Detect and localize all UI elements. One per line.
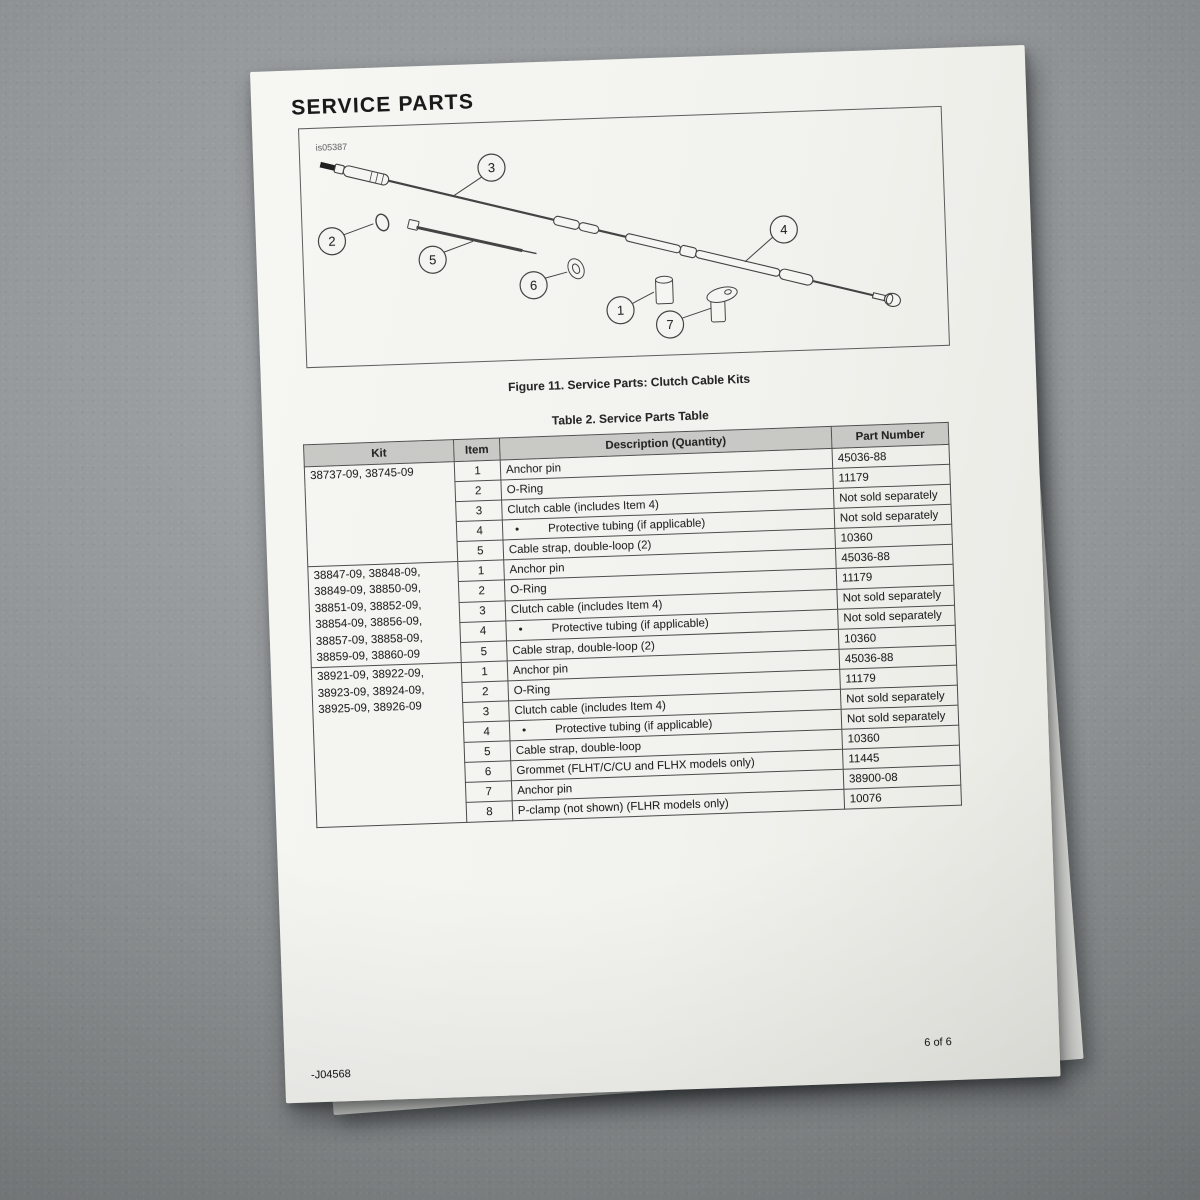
callout-number: 4 <box>780 222 788 237</box>
figure-caption: Figure 11. Service Parts: Clutch Cable K… <box>307 365 951 401</box>
bullet-marker: • <box>515 724 555 737</box>
kit-cell: 38737-09, 38745-09 <box>304 462 457 567</box>
item-cell: 5 <box>464 741 511 763</box>
callout-1: 1 <box>606 292 655 324</box>
clutch-cable-drawing <box>319 158 902 308</box>
callout-number: 5 <box>429 252 437 267</box>
page-number: 6 of 6 <box>924 1036 952 1049</box>
figure-image-code: is05387 <box>316 142 348 153</box>
service-parts-table: Kit Item Description (Quantity) Part Num… <box>303 422 962 829</box>
flanged-anchor-pin-drawing <box>705 284 740 322</box>
item-cell: 6 <box>465 761 512 783</box>
callout-5: 5 <box>419 241 475 273</box>
item-cell: 2 <box>462 681 509 703</box>
callout-number: 6 <box>530 278 538 293</box>
item-cell: 7 <box>465 781 512 803</box>
item-cell: 4 <box>456 520 503 542</box>
item-cell: 1 <box>458 560 505 582</box>
item-cell: 3 <box>463 701 510 723</box>
photo-scene: SERVICE PARTS is05387 <box>0 0 1200 1200</box>
bullet-marker: • <box>508 522 548 535</box>
callout-3: 3 <box>452 154 506 196</box>
callout-number: 2 <box>328 234 336 249</box>
callout-2: 2 <box>318 224 374 255</box>
grommet-drawing <box>565 256 588 282</box>
clutch-cable-figure: is05387 <box>299 107 949 367</box>
item-cell: 4 <box>460 621 507 643</box>
item-cell: 5 <box>457 540 504 562</box>
o-ring-drawing <box>374 212 391 232</box>
item-cell: 2 <box>458 580 505 602</box>
item-cell: 8 <box>466 801 513 823</box>
bullet-marker: • <box>511 623 551 636</box>
callout-number: 1 <box>617 303 625 318</box>
kit-cell: 38847-09, 38848-09,38849-09, 38850-09,38… <box>308 562 461 669</box>
item-cell: 1 <box>454 460 501 482</box>
item-cell: 3 <box>456 500 503 522</box>
item-cell: 2 <box>455 480 502 502</box>
page-title: SERVICE PARTS <box>291 90 475 120</box>
callout-number: 7 <box>666 317 674 332</box>
form-number: -J04568 <box>311 1068 351 1081</box>
manual-page: SERVICE PARTS is05387 <box>250 45 1061 1103</box>
callout-6: 6 <box>520 271 568 300</box>
col-header-item: Item <box>453 438 500 462</box>
callout-number: 3 <box>488 160 496 175</box>
item-cell: 4 <box>463 721 510 743</box>
kit-cell: 38921-09, 38922-09,38923-09, 38924-09,38… <box>311 663 466 828</box>
item-cell: 5 <box>461 641 508 663</box>
figure-diagram: is05387 <box>298 106 950 368</box>
anchor-pin-drawing <box>655 276 673 304</box>
part-number-cell: 10076 <box>844 786 962 810</box>
item-cell: 1 <box>461 661 508 683</box>
item-cell: 3 <box>459 600 506 622</box>
callout-7: 7 <box>656 308 712 338</box>
callout-4: 4 <box>743 216 798 262</box>
